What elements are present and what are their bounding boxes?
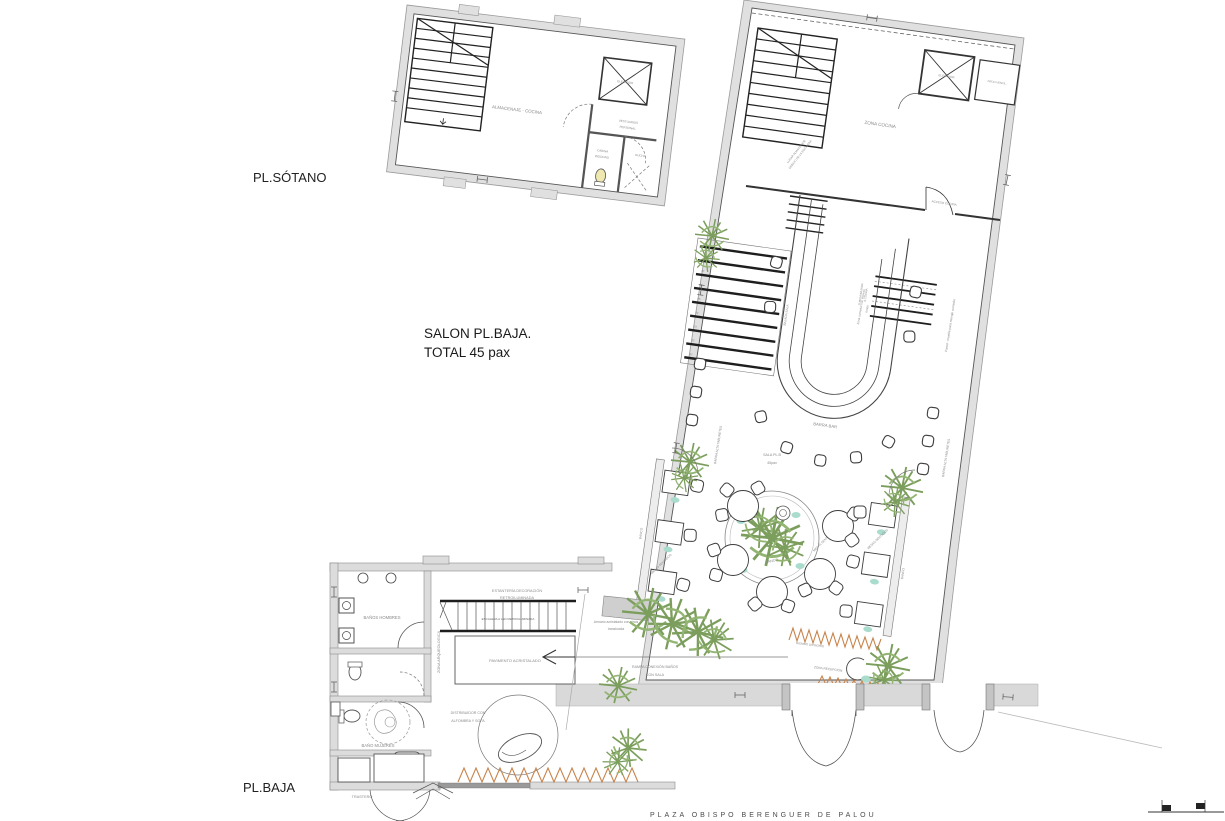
baja-title: PL.BAJA <box>243 780 295 795</box>
svg-text:CON SALA: CON SALA <box>646 673 665 677</box>
sotano-title: PL.SÓTANO <box>253 170 326 185</box>
bano-mujeres-label: BAÑO MUJERES <box>361 743 394 748</box>
sotano-plan: ALMACENAJE - COCINA ELEVADOR VESTUARIOS … <box>382 0 686 213</box>
distribuidor: DISTRIBUIDOR CON ALFOMBRA Y SOFA <box>451 695 558 775</box>
svg-text:RETROILUMINADA: RETROILUMINADA <box>500 596 534 600</box>
sofa-icon <box>494 728 546 769</box>
main-plan: LUGAR ALMACENAJE DEBAJO DE LA ESCALERA Z… <box>628 0 1024 701</box>
street-band <box>556 683 1162 766</box>
sala-name-label: SALA PL.B <box>763 453 781 457</box>
scale-bar-icon <box>1148 800 1224 812</box>
baja-stairs-icon: ESTANTERÍA DECORACIÓN RETROILUMINADA ESC… <box>440 588 576 631</box>
floor-plan-canvas: ALMACENAJE - COCINA ELEVADOR VESTUARIOS … <box>0 0 1225 821</box>
pavimento-label: PAVIMENTO ACRISTALADO <box>489 658 541 663</box>
pavimento-acristalado: PAVIMENTO ACRISTALADO <box>455 636 575 684</box>
svg-text:ALFOMBRA Y SOFA: ALFOMBRA Y SOFA <box>451 719 485 723</box>
salon-title-line2: TOTAL 45 pax <box>424 345 510 360</box>
zona-arqueologica-label: ZONA ARQUEOLOGICA <box>437 631 441 673</box>
estanteria-label: ESTANTERÍA DECORACIÓN <box>492 588 542 593</box>
sotano-elevator-icon: ELEVADOR <box>599 57 652 105</box>
svg-text:45pax: 45pax <box>767 461 777 465</box>
banco-left-label: BANCO <box>638 527 644 539</box>
baja-zigzag-icon <box>458 768 638 782</box>
floor-plan-drawing: ALMACENAJE - COCINA ELEVADOR VESTUARIOS … <box>0 0 1225 821</box>
escalera-led-label: ESCALERA A LED RETROILUMINADA <box>482 617 535 621</box>
banos-hombres-label: BAÑOS HOMBRES <box>364 615 401 620</box>
salon-title-line1: SALON PL.BAJA. <box>424 326 531 341</box>
svg-text:translúcida: translúcida <box>608 627 625 631</box>
distribuidor-label: DISTRIBUIDOR CON <box>451 711 486 715</box>
trastero-label: TRASTERO <box>352 795 373 799</box>
rampa-label: RAMPA CONEXIÓN BAÑOS <box>632 664 679 669</box>
cabina-inodoro <box>348 662 424 696</box>
entrance-door-icon <box>792 710 984 766</box>
street-name-label: PLAZA OBISPO BERENGUER DE PALOU <box>650 812 877 819</box>
banos-hombres: BAÑOS HOMBRES <box>339 573 424 648</box>
